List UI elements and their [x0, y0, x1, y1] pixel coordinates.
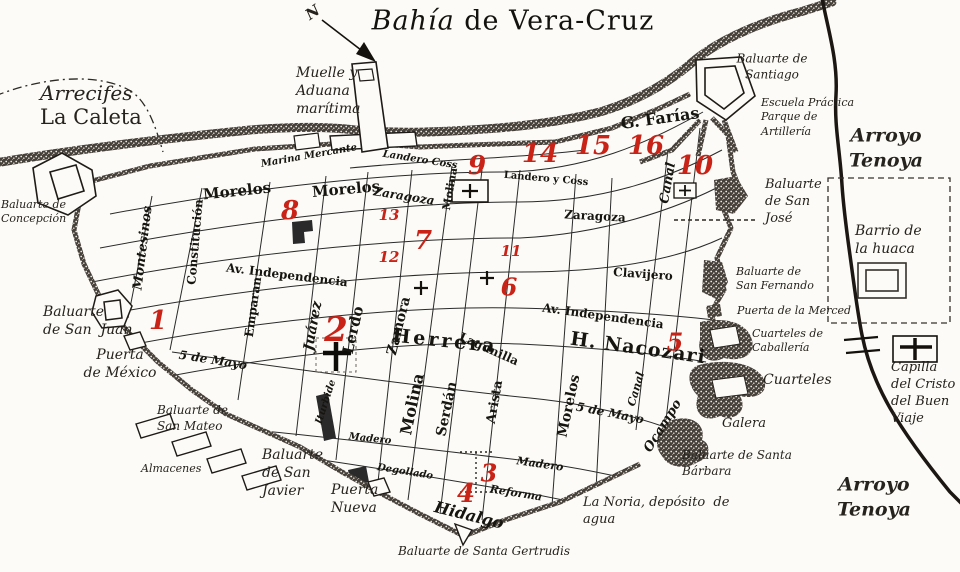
label-cuarteles-caballeria: Cuarteles deCaballería	[752, 327, 823, 356]
marker-2: 2	[324, 310, 348, 350]
marker-13: 13	[379, 206, 400, 224]
street-5-de-mayo-oeste: 5 de Mayo	[178, 348, 248, 373]
street-landero-coss: Landero Coss	[382, 149, 458, 172]
street-emparan: Emparan	[242, 276, 264, 338]
label-baluarte-concepcion: Baluarte deConcepción	[1, 198, 66, 227]
street-g-farias: G. Farías	[620, 103, 701, 133]
street-serdan: Serdán	[433, 380, 460, 438]
label-barrio-huaca: Barrio dela huaca	[855, 222, 922, 258]
marker-14: 14	[522, 139, 558, 169]
marker-3: 3	[481, 459, 498, 488]
label-baluarte-san-mateo: Baluarte deSan Mateo	[157, 403, 228, 434]
marker-7: 7	[414, 226, 432, 256]
street-molina-sur: Molina	[396, 371, 428, 436]
label-layer: ArrecifesLa CaletaMuelle yAduanamarítima…	[0, 0, 960, 572]
veracruz-historic-map: Bahía de Vera-Cruz ArrecifesLa CaletaMue…	[0, 0, 960, 572]
street-ocampo: Ocampo	[641, 397, 685, 455]
marker-9: 9	[468, 151, 486, 181]
marker-1: 1	[149, 306, 167, 336]
street-arista: Arista	[484, 379, 506, 425]
label-puerta-mexico: Puertade México	[84, 346, 157, 382]
marker-16: 16	[628, 131, 664, 161]
street-molina-norte: Molina	[440, 167, 460, 212]
label-arrecifes: Arrecifes	[40, 80, 133, 106]
label-baluarte-san-javier: Baluartede SanJavier	[262, 446, 323, 501]
label-la-noria: La Noria, depósito deagua	[583, 495, 729, 529]
label-arroyo-tenoya-norte: ArroyoTenoya	[849, 123, 923, 172]
street-marina-mercante: Marina Mercante	[260, 142, 358, 170]
street-h-nacozari: H. Nacozari	[569, 328, 707, 369]
street-juarez: Juárez	[301, 300, 325, 352]
marker-11: 11	[501, 242, 522, 260]
label-capilla-cristo: Capilladel Cristodel BuenViaje	[891, 360, 955, 428]
street-zaragoza-este: Zaragoza	[564, 207, 626, 224]
street-constitucion: Constitución	[184, 199, 205, 286]
street-canal-norte: Canal	[657, 161, 679, 205]
marker-4: 4	[457, 479, 475, 509]
marker-6: 6	[501, 273, 518, 302]
street-madero-este: Madero	[516, 454, 564, 473]
street-av-independencia-este: Av. Independencia	[541, 301, 664, 332]
label-arroyo-tenoya-sur: ArroyoTenoya	[837, 472, 911, 521]
street-iturbide: Iturbide	[314, 378, 339, 425]
street-av-independencia-oeste: Av. Independencia	[225, 261, 348, 290]
label-cuarteles: Cuarteles	[763, 371, 832, 389]
street-madero-oeste: Madero	[348, 431, 392, 446]
street-landero-y-coss: Landero y Coss	[503, 170, 588, 188]
label-galera: Galera	[722, 416, 766, 433]
label-puerta-merced: Puerta de la Merced	[737, 304, 851, 318]
label-almacenes: Almacenes	[141, 462, 201, 476]
street-clavijero: Clavijero	[613, 265, 674, 283]
label-la-caleta: La Caleta	[40, 104, 142, 131]
marker-5: 5	[667, 328, 684, 357]
label-baluarte-santiago: Baluarte deSantiago	[737, 51, 808, 82]
marker-15: 15	[575, 131, 611, 161]
compass-n: N	[302, 1, 324, 25]
label-baluarte-santa-barbara: Baluarte de SantaBárbara	[682, 448, 792, 479]
street-zaragoza-norte: Zaragoza	[372, 184, 435, 207]
street-montesinos: Montesinos	[130, 205, 155, 291]
label-baluarte-santa-gertrudis: Baluarte de Santa Gertrudis	[398, 544, 570, 560]
marker-12: 12	[379, 248, 400, 266]
street-canal-sur: Canal	[625, 370, 647, 407]
label-escuela-practica: Escuela PrácticaParque deArtillería	[761, 96, 854, 139]
street-degollado: Degollado	[376, 462, 433, 482]
label-baluarte-san-juan: Baluartede San Juan	[43, 303, 133, 339]
street-morelos-centro: Morelos	[311, 177, 381, 201]
label-muelle-aduana: Muelle yAduanamarítima	[296, 64, 361, 119]
label-baluarte-san-fernando: Baluarte deSan Fernando	[736, 265, 814, 294]
street-morelos-oeste: Morelos	[202, 178, 272, 203]
label-puerta-nueva: PuertaNueva	[331, 481, 378, 517]
marker-10: 10	[677, 151, 713, 181]
marker-8: 8	[281, 196, 299, 226]
label-baluarte-san-jose: Baluartede SanJosé	[765, 177, 822, 228]
